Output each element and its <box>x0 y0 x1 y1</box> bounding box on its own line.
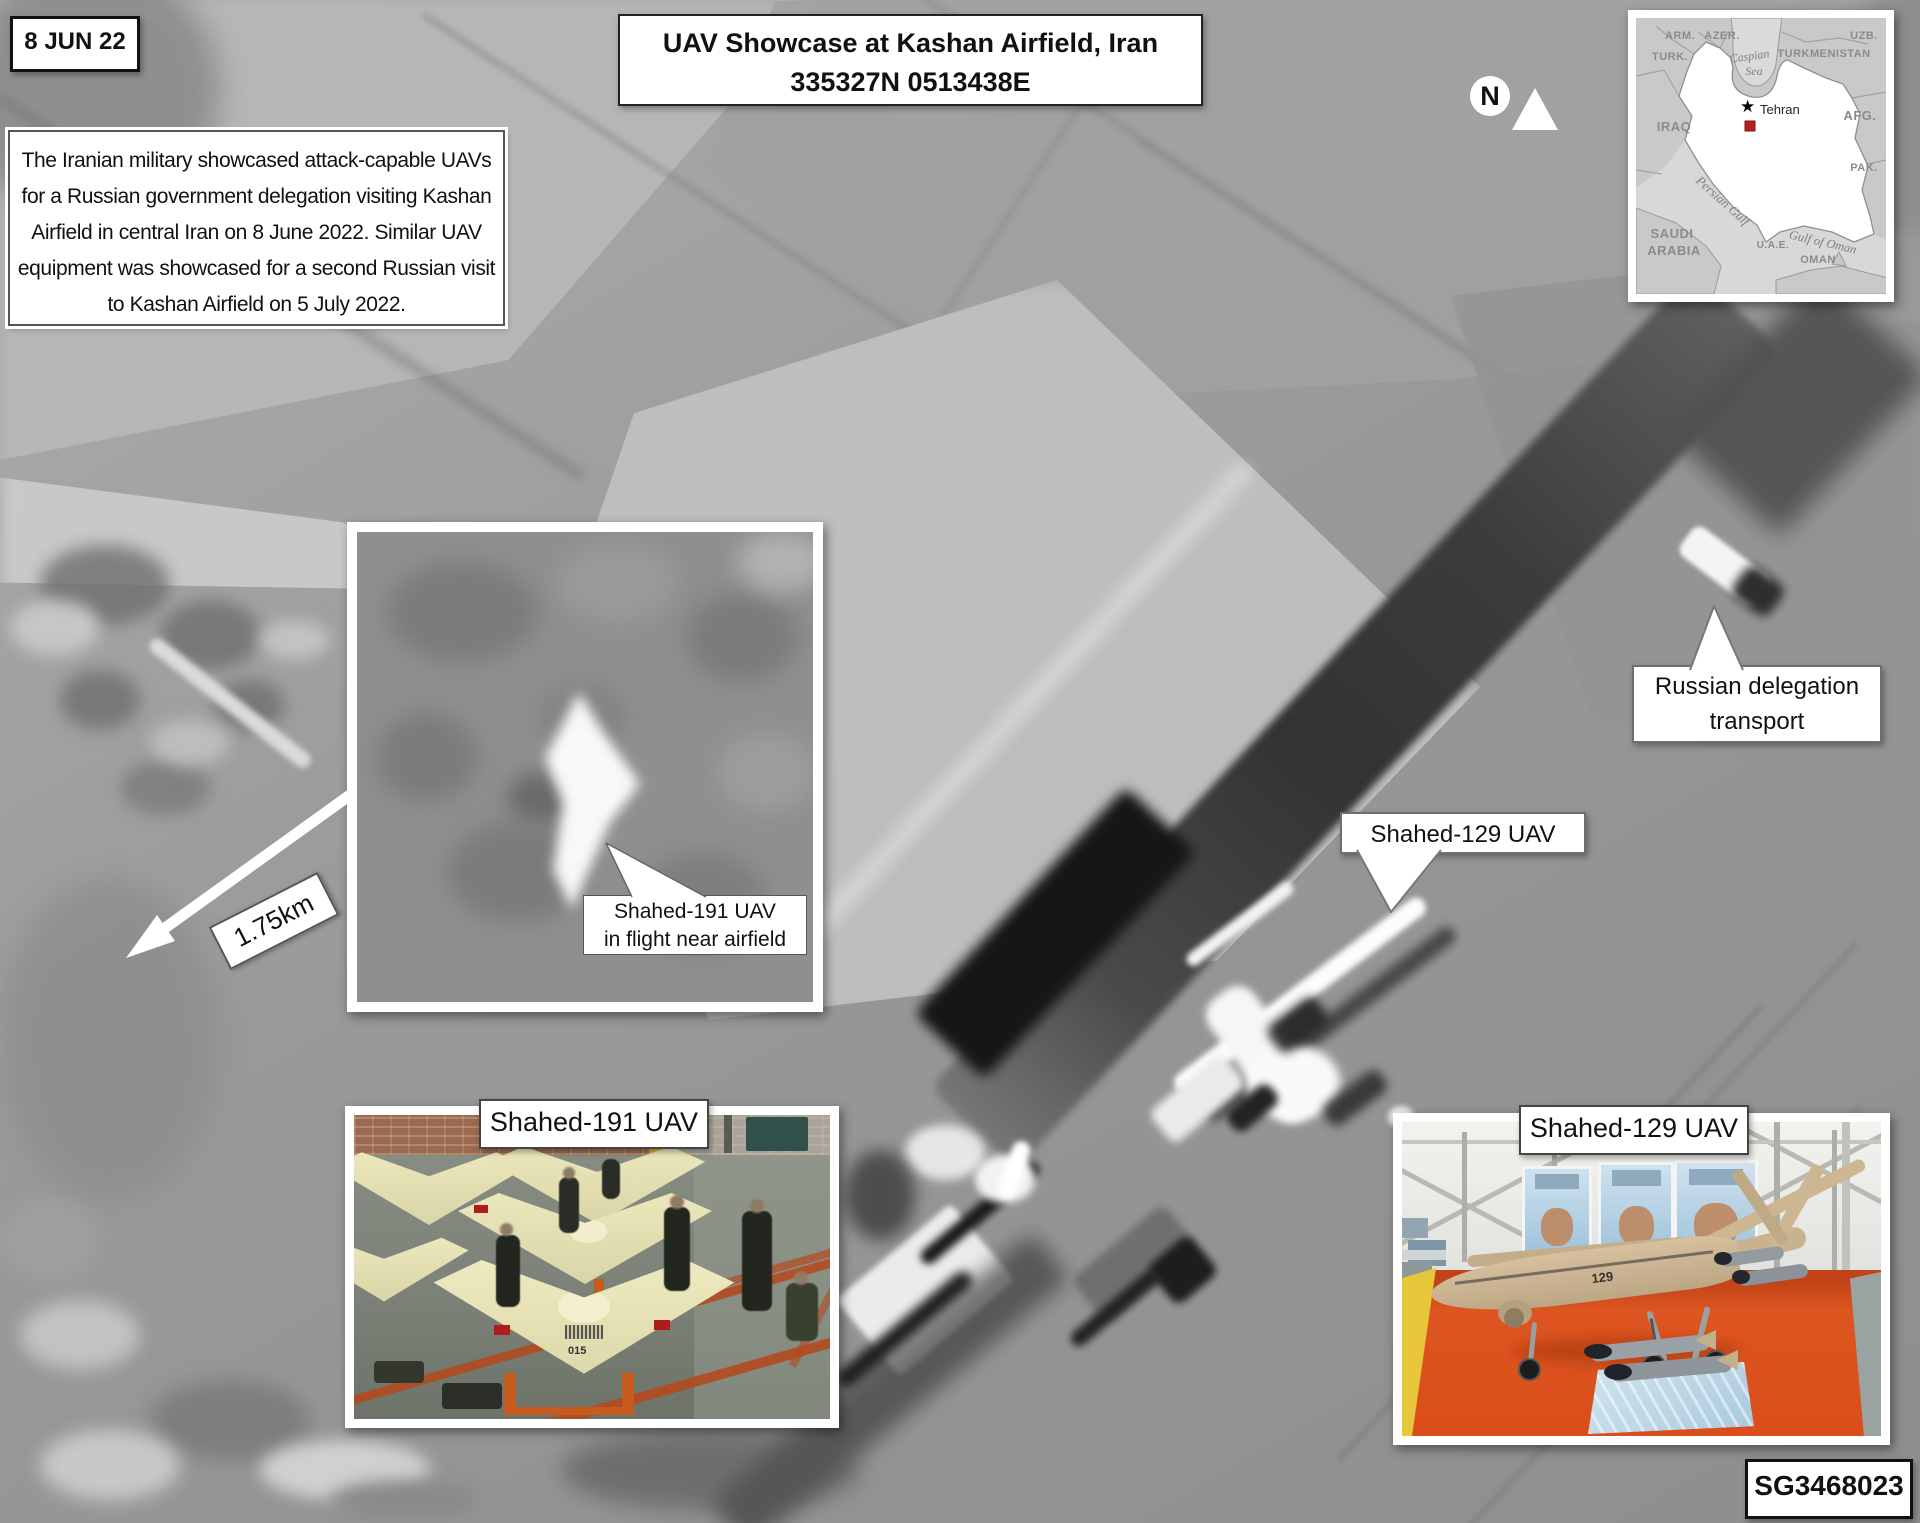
map-label-armenia: ARM. <box>1665 30 1695 42</box>
map-label-afghanistan: AFG. <box>1843 108 1876 123</box>
description-line: The Iranian military showcased attack-ca… <box>10 143 503 179</box>
inflight-callout-line-1: Shahed-191 UAV <box>584 898 806 926</box>
map-label-iraq: IRAQ <box>1657 119 1692 134</box>
shahed129-tail-number: 129 <box>1591 1268 1614 1286</box>
shahed191-photo-label: Shahed-191 UAV <box>479 1099 709 1149</box>
map-label-saudi-2: ARABIA <box>1647 243 1701 258</box>
transport-callout-line-1: Russian delegation <box>1634 670 1880 705</box>
shahed129-callout-pointer <box>1357 850 1441 912</box>
date-box: 8 JUN 22 <box>10 16 140 72</box>
description-line: to Kashan Airfield on 5 July 2022. <box>10 287 503 323</box>
map-label-pakistan: PAK. <box>1850 162 1877 174</box>
poster <box>1522 1166 1592 1256</box>
north-indicator: N <box>1470 72 1580 132</box>
map-label-turkmenistan: TURKMENISTAN <box>1777 48 1870 60</box>
capital-star-icon: ★ <box>1740 97 1755 116</box>
transport-callout-line-2: transport <box>1634 705 1880 740</box>
iran-locator-map: ARM. AZER. TURK. UZB. TURKMENISTAN IRAQ … <box>1628 10 1894 302</box>
transport-callout-box: Russian delegation transport <box>1632 665 1882 743</box>
map-label-tehran: Tehran <box>1760 102 1800 117</box>
description-line: for a Russian government delegation visi… <box>10 179 503 215</box>
map-label-azerbaijan: AZER. <box>1704 30 1740 42</box>
north-label-circle: N <box>1470 76 1510 116</box>
title-box: UAV Showcase at Kashan Airfield, Iran 33… <box>618 14 1203 106</box>
graphic-id-box: SG3468023 <box>1745 1459 1913 1519</box>
inflight-callout-line-2: in flight near airfield <box>584 926 806 954</box>
shahed191-tail-number: 015 <box>568 1345 586 1357</box>
description-box: The Iranian military showcased attack-ca… <box>8 130 505 326</box>
map-label-saudi-1: SAUDI <box>1651 226 1694 241</box>
intel-graphic: 8 JUN 22 UAV Showcase at Kashan Airfield… <box>0 0 1920 1523</box>
description-line: equipment was showcased for a second Rus… <box>10 251 503 287</box>
shahed129-photo: 129 <box>1402 1122 1881 1436</box>
shahed129-ground-callout-box: Shahed-129 UAV <box>1340 812 1586 854</box>
shahed191-photo: 015 <box>354 1115 830 1419</box>
kashan-location-marker <box>1745 121 1755 131</box>
hangar-door <box>746 1117 808 1151</box>
map-label-uzbekistan: UZB. <box>1850 30 1878 42</box>
shahed191-photo-inset: 015 <box>345 1106 839 1428</box>
description-line: Airfield in central Iran on 8 June 2022.… <box>10 215 503 251</box>
map-label-oman: OMAN <box>1800 254 1836 266</box>
map-label-uae: U.A.E. <box>1757 240 1789 251</box>
north-arrow-icon <box>1512 88 1558 130</box>
title-line-1: UAV Showcase at Kashan Airfield, Iran <box>620 24 1201 63</box>
map-label-turkey: TURK. <box>1652 51 1688 63</box>
shahed129-photo-inset: 129 <box>1393 1113 1890 1445</box>
shahed129-photo-label: Shahed-129 UAV <box>1519 1105 1749 1155</box>
scale-label-box: 1.75km <box>209 872 339 970</box>
inflight-callout-box: Shahed-191 UAV in flight near airfield <box>583 895 807 955</box>
title-line-2: 335327N 0513438E <box>620 63 1201 102</box>
map-label-caspian-2: Sea <box>1745 64 1762 78</box>
map-svg: ARM. AZER. TURK. UZB. TURKMENISTAN IRAQ … <box>1636 18 1886 294</box>
